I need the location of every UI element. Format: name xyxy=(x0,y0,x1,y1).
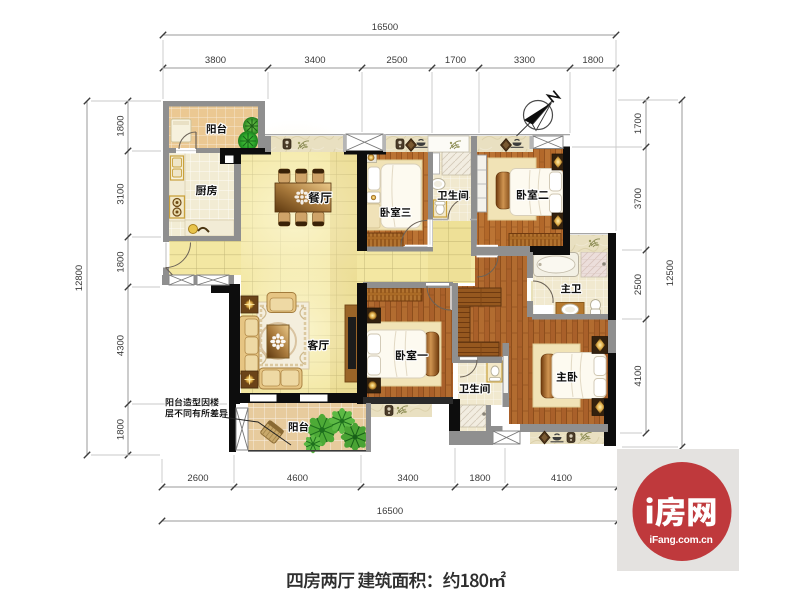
svg-text:3700: 3700 xyxy=(633,188,644,209)
svg-text:iFang.com.cn: iFang.com.cn xyxy=(649,535,712,546)
svg-text:4100: 4100 xyxy=(551,473,572,484)
svg-text:1700: 1700 xyxy=(445,55,466,66)
svg-text:4600: 4600 xyxy=(287,473,308,484)
svg-text:16500: 16500 xyxy=(377,506,403,517)
svg-text:12500: 12500 xyxy=(665,260,676,286)
svg-text:2500: 2500 xyxy=(633,274,644,295)
svg-text:16500: 16500 xyxy=(372,22,398,33)
svg-text:3100: 3100 xyxy=(116,183,127,204)
svg-text:3800: 3800 xyxy=(205,55,226,66)
svg-text:4100: 4100 xyxy=(633,365,644,386)
svg-text:3300: 3300 xyxy=(514,55,535,66)
svg-text:2600: 2600 xyxy=(187,473,208,484)
svg-text:1800: 1800 xyxy=(116,115,127,136)
svg-text:3400: 3400 xyxy=(397,473,418,484)
svg-text:4300: 4300 xyxy=(116,335,127,356)
svg-text:1800: 1800 xyxy=(582,55,603,66)
svg-text:1800: 1800 xyxy=(116,419,127,440)
svg-text:1800: 1800 xyxy=(116,251,127,272)
svg-text:1800: 1800 xyxy=(469,473,490,484)
svg-text:1700: 1700 xyxy=(633,113,644,134)
svg-text:12800: 12800 xyxy=(74,265,85,291)
svg-text:2500: 2500 xyxy=(386,55,407,66)
svg-text:3400: 3400 xyxy=(304,55,325,66)
